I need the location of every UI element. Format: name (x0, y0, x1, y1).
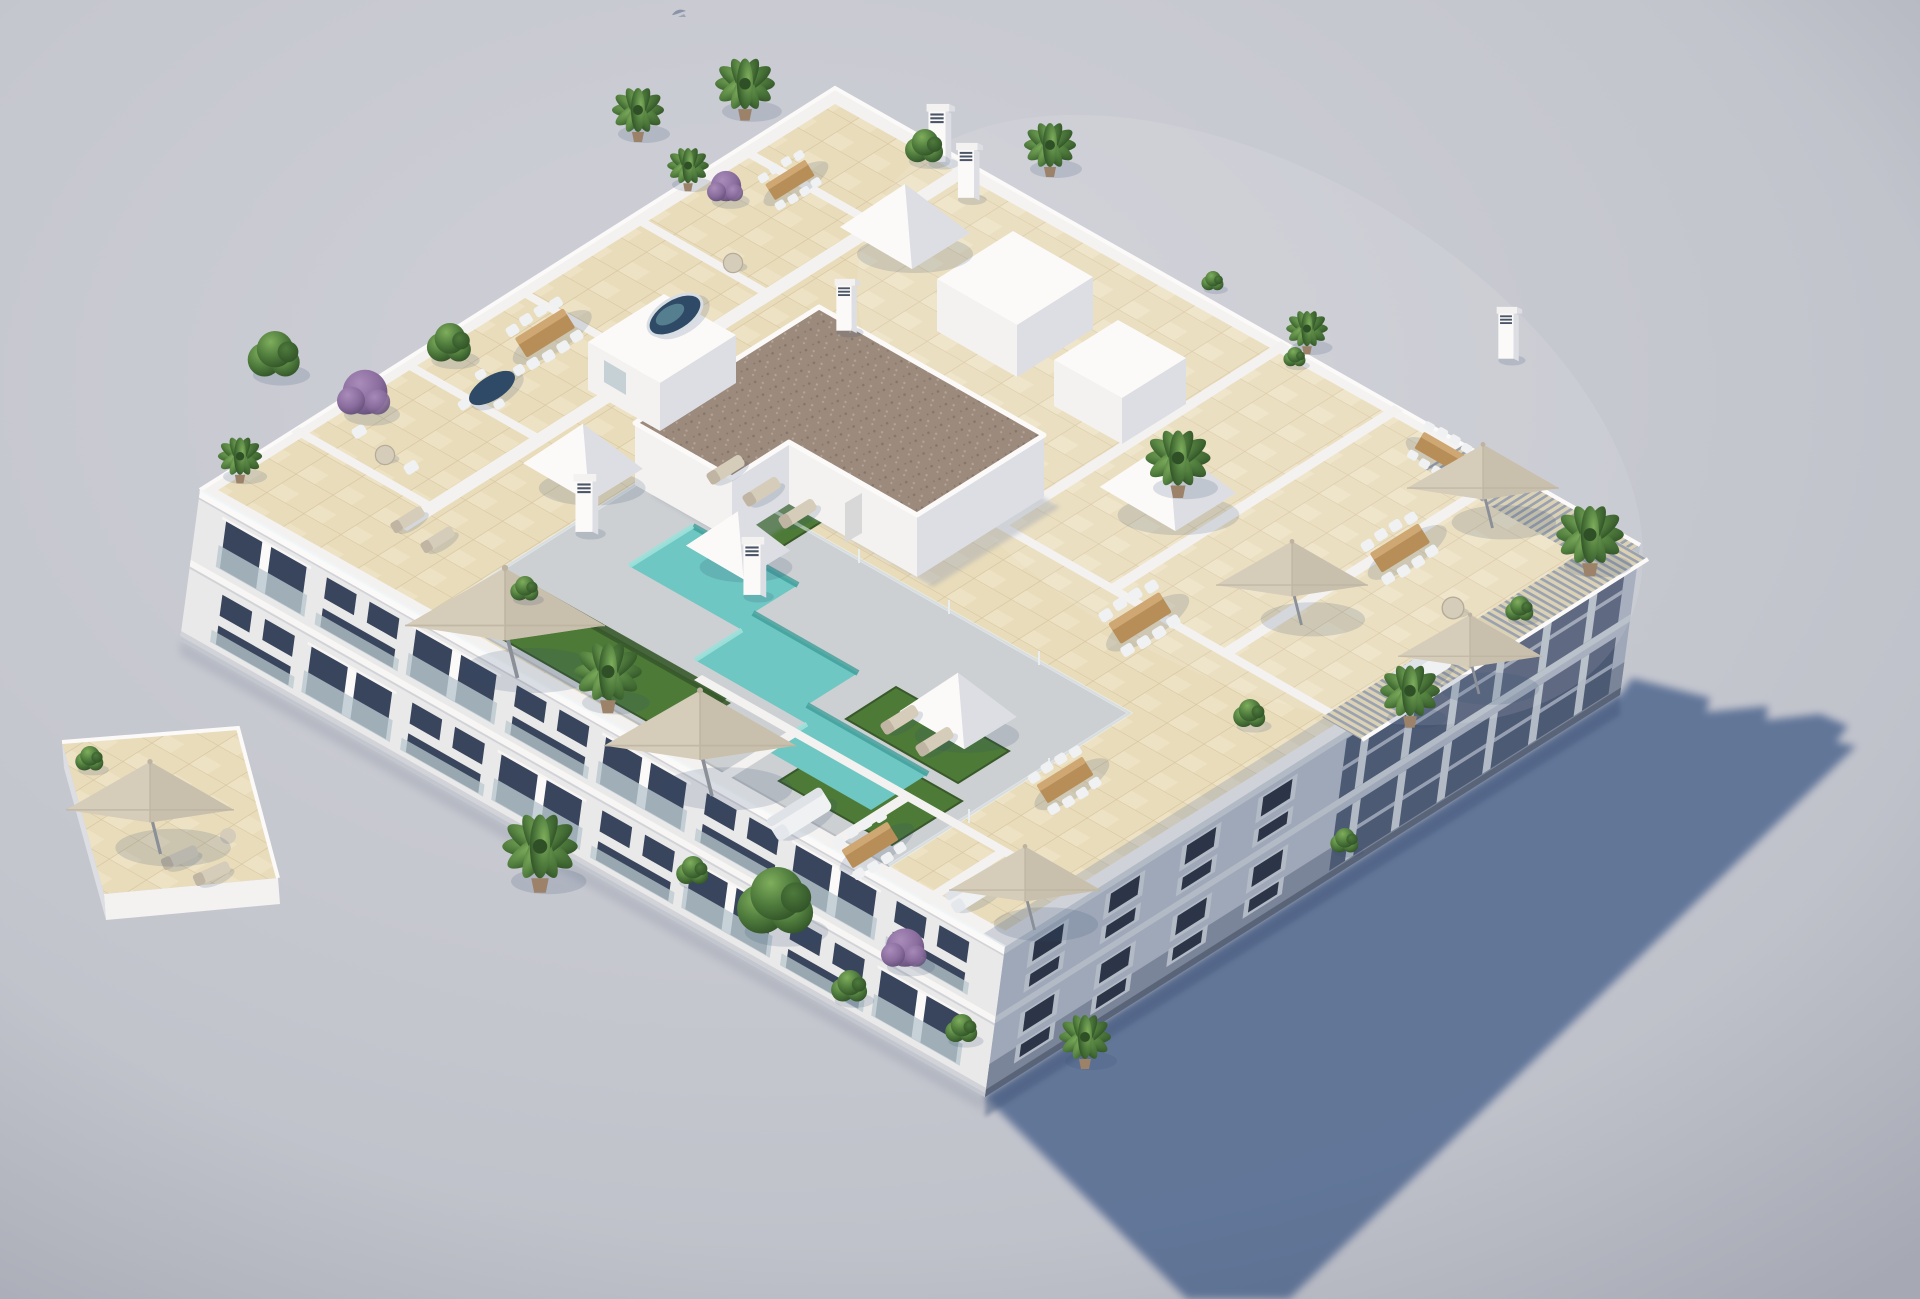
render-stage (0, 0, 1920, 1299)
rooftop-render-image (0, 0, 1920, 1299)
